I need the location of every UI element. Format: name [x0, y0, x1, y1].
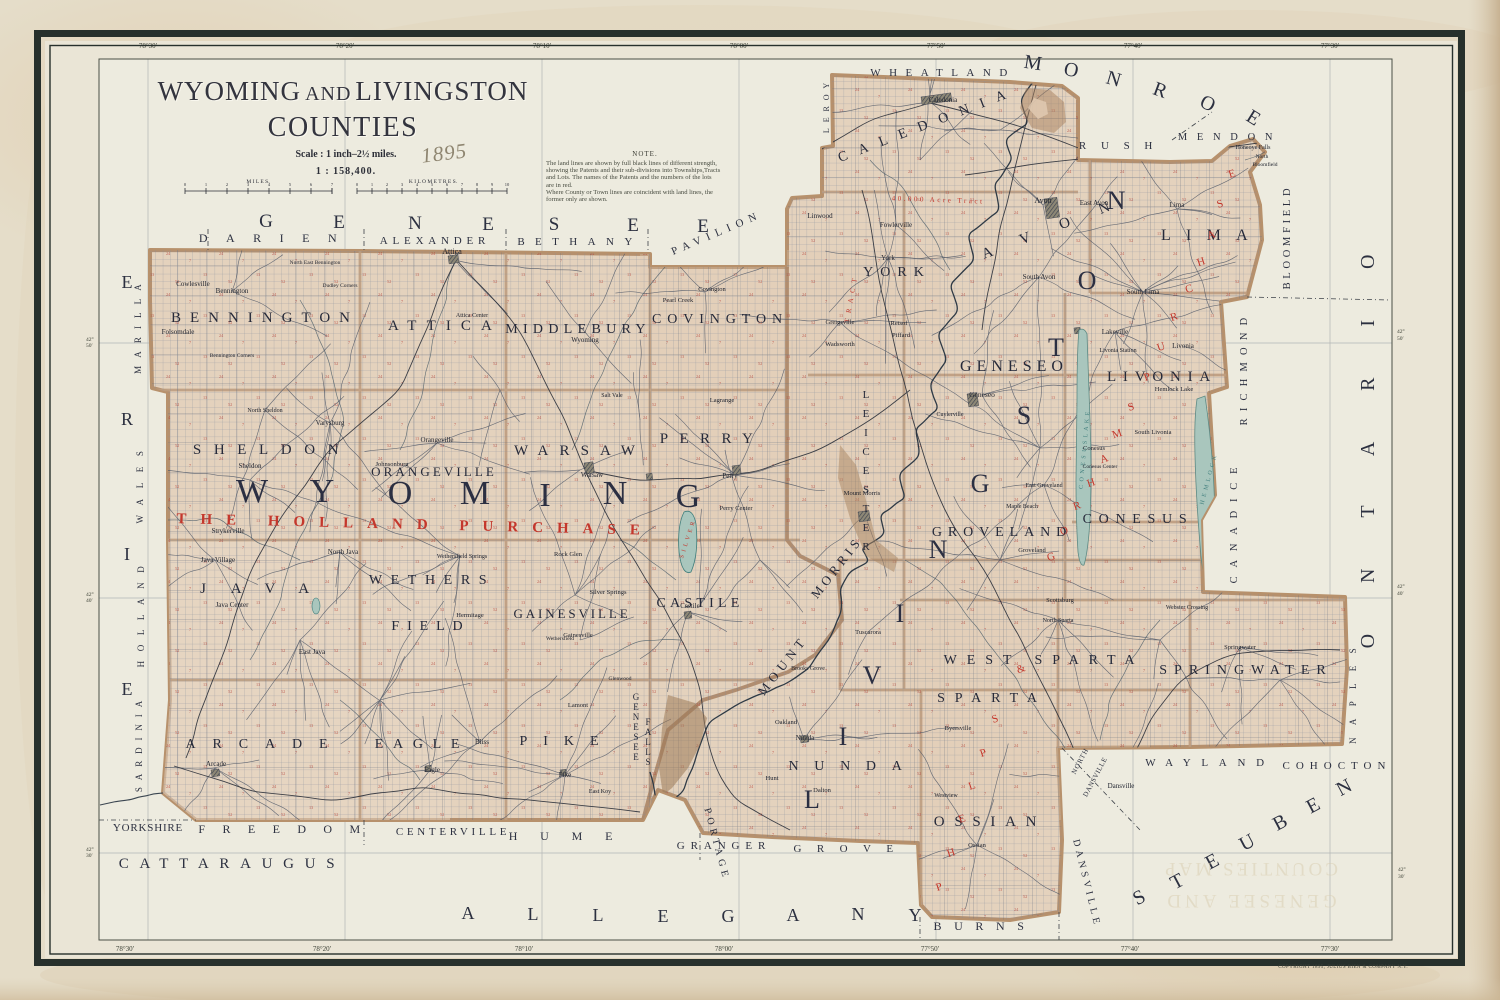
svg-text:Lagrange: Lagrange [710, 397, 735, 404]
svg-text:Tuscarora: Tuscarora [855, 629, 881, 636]
svg-text:GENESEO: GENESEO [960, 358, 1068, 375]
svg-text:42°: 42° [1397, 583, 1405, 590]
svg-text:50′: 50′ [1397, 336, 1404, 342]
svg-text:The land lines are shown by fu: The land lines are shown by full black l… [546, 160, 717, 167]
svg-text:E: E [122, 272, 133, 292]
svg-text:showing the Patents and their: showing the Patents and their sub-divisi… [546, 167, 721, 174]
svg-text:COVINGTON: COVINGTON [652, 312, 788, 327]
svg-text:E: E [122, 679, 133, 699]
svg-text:MENDON: MENDON [1178, 132, 1282, 143]
svg-text:Orangeville: Orangeville [420, 436, 453, 444]
svg-text:Where County or Town lines are: Where County or Town lines are coinciden… [546, 189, 713, 196]
svg-text:R: R [121, 409, 133, 429]
svg-text:I: I [864, 427, 868, 439]
svg-text:GROVELAND: GROVELAND [932, 525, 1072, 540]
svg-text:F: F [645, 717, 650, 727]
svg-text:40′: 40′ [1397, 591, 1404, 597]
svg-text:10: 10 [505, 182, 510, 187]
svg-text:77°40′: 77°40′ [1121, 945, 1140, 953]
svg-text:GENESEE AND: GENESEE AND [1163, 890, 1336, 911]
svg-text:Conesus Center: Conesus Center [1083, 464, 1118, 470]
svg-text:Strykerville: Strykerville [211, 527, 244, 535]
svg-text:Honeoye Falls: Honeoye Falls [1236, 145, 1271, 151]
svg-text:I: I [539, 477, 550, 514]
svg-text:Dansville: Dansville [1108, 782, 1135, 790]
svg-text:FREEDOM: FREEDOM [198, 822, 377, 836]
svg-text:L: L [863, 389, 870, 401]
svg-text:RICHMOND: RICHMOND [1239, 311, 1250, 426]
svg-text:MIDDLEBURY: MIDDLEBURY [505, 322, 651, 337]
svg-text:1: 1 [205, 182, 207, 187]
svg-text:Byersville: Byersville [945, 725, 972, 732]
svg-text:SARDINIA: SARDINIA [134, 694, 144, 792]
svg-text:G: G [259, 211, 273, 232]
svg-text:Attica: Attica [442, 247, 462, 256]
svg-text:S: S [645, 757, 650, 767]
svg-text:Scottsburg: Scottsburg [1046, 597, 1074, 604]
svg-text:L: L [645, 737, 651, 747]
svg-text:Bennington: Bennington [216, 287, 249, 295]
svg-text:Ossian: Ossian [968, 842, 986, 849]
svg-text:50′: 50′ [86, 343, 93, 349]
svg-text:WARSAW: WARSAW [514, 443, 646, 459]
svg-text:Livonia: Livonia [1172, 342, 1195, 350]
svg-text:Perry: Perry [722, 472, 738, 480]
svg-text:CATTARAUGUS: CATTARAUGUS [119, 856, 346, 872]
svg-text:HOLLAND: HOLLAND [136, 557, 146, 668]
svg-text:FIELD: FIELD [391, 619, 470, 634]
svg-text:S: S [1017, 401, 1031, 430]
svg-text:ALEXANDER: ALEXANDER [380, 235, 490, 247]
svg-text:LIVONIA: LIVONIA [1107, 369, 1217, 385]
svg-text:Silver Springs: Silver Springs [589, 589, 626, 596]
svg-text:N: N [852, 904, 865, 924]
svg-text:YORK: YORK [863, 265, 931, 280]
svg-text:North East Bennington: North East Bennington [290, 260, 341, 266]
svg-text:E: E [482, 214, 494, 235]
svg-text:WETHERS: WETHERS [369, 573, 495, 588]
svg-text:GAINESVILLE: GAINESVILLE [513, 606, 630, 621]
svg-text:and Lots. The names of the Pa: and Lots. The names of the Patents and t… [546, 174, 712, 181]
svg-text:Arcade: Arcade [206, 760, 226, 768]
svg-text:NAPLES: NAPLES [1348, 636, 1358, 744]
svg-text:E: E [633, 752, 639, 762]
svg-text:E: E [333, 212, 345, 233]
svg-text:40′: 40′ [86, 598, 93, 604]
svg-text:L: L [528, 904, 539, 924]
svg-text:Folsomdale: Folsomdale [162, 328, 195, 336]
svg-text:Hermitage: Hermitage [456, 612, 484, 619]
svg-text:GROVE: GROVE [794, 843, 909, 855]
svg-text:Westview: Westview [934, 793, 958, 799]
svg-text:Greigsville: Greigsville [826, 319, 855, 326]
svg-text:CONESUS: CONESUS [1083, 512, 1194, 527]
svg-text:Lamont: Lamont [568, 702, 588, 709]
svg-text:Eagle: Eagle [424, 766, 440, 774]
svg-text:BETHANY: BETHANY [517, 236, 642, 248]
svg-text:EAGLE: EAGLE [375, 737, 469, 752]
svg-text:Wyoming: Wyoming [571, 336, 599, 344]
svg-text:E: E [863, 465, 870, 477]
svg-text:Bliss: Bliss [475, 738, 489, 746]
svg-text:Linwood: Linwood [807, 212, 833, 220]
svg-text:L: L [645, 747, 651, 757]
svg-text:WALES: WALES [135, 441, 145, 524]
svg-text:NUNDA: NUNDA [788, 759, 917, 774]
svg-text:RUSH: RUSH [1079, 140, 1167, 152]
svg-text:Castile: Castile [680, 602, 699, 610]
svg-text:Conesus: Conesus [1083, 445, 1106, 452]
svg-text:Rock Glen: Rock Glen [554, 551, 583, 558]
svg-text:42°: 42° [1398, 866, 1406, 873]
svg-text:Lakeville: Lakeville [1102, 328, 1128, 336]
svg-text:South Livonia: South Livonia [1134, 429, 1171, 436]
svg-text:Brooks Grove: Brooks Grove [791, 666, 825, 672]
svg-text:Oakland: Oakland [775, 719, 798, 726]
svg-text:Caledonia: Caledonia [929, 96, 958, 104]
svg-text:78°10′: 78°10′ [515, 945, 534, 953]
svg-text:Wethersfield: Wethersfield [546, 635, 574, 642]
svg-text:Java Village: Java Village [201, 556, 235, 564]
svg-text:Glenwood: Glenwood [609, 676, 632, 682]
svg-text:North Java: North Java [328, 548, 359, 556]
svg-text:W: W [236, 473, 269, 510]
svg-text:North: North [1256, 154, 1269, 160]
svg-text:SPARTA: SPARTA [937, 691, 1047, 706]
svg-text:OSSIAN: OSSIAN [934, 814, 1046, 830]
svg-text:COUNTIES MAP: COUNTIES MAP [1162, 858, 1338, 879]
svg-text:E: E [633, 722, 639, 732]
svg-text:N: N [603, 475, 628, 512]
svg-text:BENNINGTON: BENNINGTON [171, 310, 359, 326]
svg-text:LEROY: LEROY [822, 77, 831, 133]
svg-text:WEST SPARTA: WEST SPARTA [944, 653, 1145, 668]
svg-text:South Avon: South Avon [1023, 273, 1056, 281]
svg-text:I: I [839, 722, 848, 751]
svg-text:Hemlock Lake: Hemlock Lake [1155, 386, 1194, 393]
svg-text:A: A [645, 727, 652, 737]
svg-text:S: S [549, 214, 560, 235]
svg-text:Scale : 1 inch–2½ miles.: Scale : 1 inch–2½ miles. [295, 149, 397, 160]
svg-text:I: I [896, 599, 905, 628]
svg-text:Bennington Corners: Bennington Corners [210, 353, 254, 359]
svg-text:North Sparta: North Sparta [1043, 618, 1074, 624]
svg-text:Maple Beach: Maple Beach [1006, 504, 1038, 510]
svg-text:HUME: HUME [509, 829, 636, 843]
svg-text:COUNTIES: COUNTIES [268, 112, 418, 143]
svg-text:1 : 158,400.: 1 : 158,400. [316, 166, 376, 177]
svg-text:G: G [633, 692, 640, 702]
svg-text:SHELDON: SHELDON [193, 442, 351, 458]
svg-text:Warsaw: Warsaw [581, 471, 604, 479]
svg-text:CASTILE: CASTILE [657, 596, 744, 611]
svg-text:Geneseo: Geneseo [969, 390, 995, 399]
svg-text:L: L [593, 905, 604, 925]
svg-text:East Groveland: East Groveland [1025, 483, 1062, 489]
svg-text:V: V [863, 661, 882, 690]
svg-text:I: I [124, 544, 130, 564]
svg-text:E: E [627, 215, 639, 236]
svg-text:E: E [633, 742, 639, 752]
svg-text:M: M [1022, 51, 1043, 76]
svg-text:Wethersfield Springs: Wethersfield Springs [437, 553, 488, 560]
svg-text:Nunda: Nunda [796, 734, 816, 742]
svg-text:COHOCTON: COHOCTON [1283, 760, 1392, 772]
svg-text:Dalton: Dalton [813, 787, 831, 794]
svg-text:BURNS: BURNS [933, 919, 1036, 933]
svg-text:Webster Crossing: Webster Crossing [1166, 605, 1208, 611]
svg-text:Sheldon: Sheldon [239, 462, 262, 470]
svg-text:77°50′: 77°50′ [921, 945, 940, 953]
svg-text:Y: Y [909, 905, 922, 925]
svg-text:2: 2 [226, 182, 228, 187]
svg-text:30′: 30′ [86, 853, 93, 859]
svg-text:CANADICE: CANADICE [1229, 459, 1240, 584]
svg-text:N: N [408, 213, 422, 234]
svg-text:C: C [862, 446, 869, 458]
svg-text:Hunt: Hunt [766, 775, 779, 782]
svg-text:T: T [863, 503, 870, 515]
svg-text:77°30′: 77°30′ [1321, 945, 1340, 953]
svg-text:Johnsonburg: Johnsonburg [375, 461, 409, 468]
svg-text:M I L E S.: M I L E S. [246, 179, 270, 185]
svg-text:G: G [971, 469, 990, 498]
svg-text:Covington: Covington [698, 286, 726, 293]
svg-text:DARIEN: DARIEN [199, 231, 355, 245]
svg-text:Dudley Corners: Dudley Corners [323, 283, 358, 289]
svg-text:Cuylerville: Cuylerville [937, 412, 964, 418]
svg-text:Livonia Station: Livonia Station [1099, 348, 1136, 354]
svg-text:Bloomfield: Bloomfield [1252, 161, 1277, 168]
svg-text:Salt Vale: Salt Vale [601, 393, 623, 399]
svg-text:Y: Y [310, 473, 335, 510]
svg-text:Avon: Avon [1034, 196, 1051, 205]
svg-text:Lima: Lima [1170, 201, 1186, 209]
svg-text:NOTE.: NOTE. [632, 150, 657, 158]
svg-text:North Sheldon: North Sheldon [247, 408, 282, 414]
svg-text:PERRY: PERRY [660, 431, 765, 447]
svg-text:Wadsworth: Wadsworth [825, 341, 855, 348]
svg-text:COPYRIGHT 1895, JULIUS BIEN &: COPYRIGHT 1895, JULIUS BIEN & COMPANY N.… [1278, 965, 1408, 970]
svg-text:ONTARIO: ONTARIO [1357, 204, 1379, 649]
svg-text:A: A [787, 905, 800, 925]
svg-text:O: O [1078, 266, 1097, 295]
svg-text:Varysburg: Varysburg [316, 419, 345, 427]
svg-text:are in red.: are in red. [546, 182, 573, 189]
svg-text:Piffard: Piffard [892, 332, 911, 339]
svg-text:East Avon: East Avon [1080, 199, 1109, 207]
svg-text:CENTERVILLE: CENTERVILLE [396, 826, 510, 838]
svg-text:ATTICA: ATTICA [388, 318, 502, 334]
svg-text:O: O [388, 475, 413, 512]
svg-text:WHEATLAND: WHEATLAND [870, 67, 1016, 79]
svg-text:PIKE: PIKE [519, 734, 614, 749]
svg-text:30′: 30′ [1398, 874, 1405, 880]
svg-text:E: E [863, 522, 870, 534]
svg-text:WAYLAND: WAYLAND [1145, 757, 1275, 769]
svg-text:YORKSHIRE: YORKSHIRE [113, 822, 183, 834]
svg-text:BLOOMFIELD: BLOOMFIELD [1282, 185, 1293, 290]
svg-text:Attica Center: Attica Center [456, 313, 488, 319]
svg-text:78°00′: 78°00′ [715, 945, 734, 953]
svg-text:G: G [676, 478, 701, 515]
svg-text:S: S [633, 732, 638, 742]
svg-text:York: York [881, 254, 895, 262]
svg-text:42°: 42° [86, 591, 94, 598]
svg-text:East Koy: East Koy [589, 789, 611, 795]
svg-text:JAVA: JAVA [200, 581, 334, 597]
svg-text:M: M [460, 475, 490, 512]
svg-text:78°20′: 78°20′ [313, 945, 332, 953]
svg-text:42°: 42° [86, 336, 94, 343]
svg-text:42°: 42° [1397, 328, 1405, 335]
svg-text:E: E [633, 702, 639, 712]
svg-text:G: G [722, 906, 735, 926]
svg-text:42°: 42° [86, 846, 94, 853]
svg-text:South Lima: South Lima [1127, 288, 1161, 296]
svg-text:former only are shown.: former only are shown. [546, 196, 608, 203]
svg-text:Mount Morris: Mount Morris [844, 490, 881, 497]
svg-text:E: E [658, 906, 669, 926]
svg-text:Groveland: Groveland [1018, 547, 1046, 554]
svg-text:Fowlerville: Fowlerville [880, 221, 912, 229]
svg-text:East Java: East Java [299, 648, 326, 656]
svg-text:2: 2 [386, 182, 388, 187]
svg-text:SPRINGWATER: SPRINGWATER [1159, 663, 1332, 678]
svg-text:Springwater: Springwater [1224, 644, 1257, 651]
svg-text:N: N [633, 712, 640, 722]
svg-text:E: E [863, 408, 870, 420]
svg-text:Cowlesville: Cowlesville [176, 280, 209, 288]
svg-text:1: 1 [371, 182, 373, 187]
svg-text:Pike: Pike [559, 771, 571, 779]
svg-text:Retsof: Retsof [891, 320, 909, 327]
svg-text:A: A [462, 903, 475, 923]
svg-text:Perry Center: Perry Center [719, 505, 753, 512]
svg-text:78°30′: 78°30′ [116, 945, 135, 953]
svg-text:Pearl Creek: Pearl Creek [663, 297, 694, 304]
svg-text:ARCADE: ARCADE [186, 737, 345, 752]
svg-text:Java Center: Java Center [216, 601, 250, 609]
svg-text:MARILLA: MARILLA [133, 276, 143, 374]
